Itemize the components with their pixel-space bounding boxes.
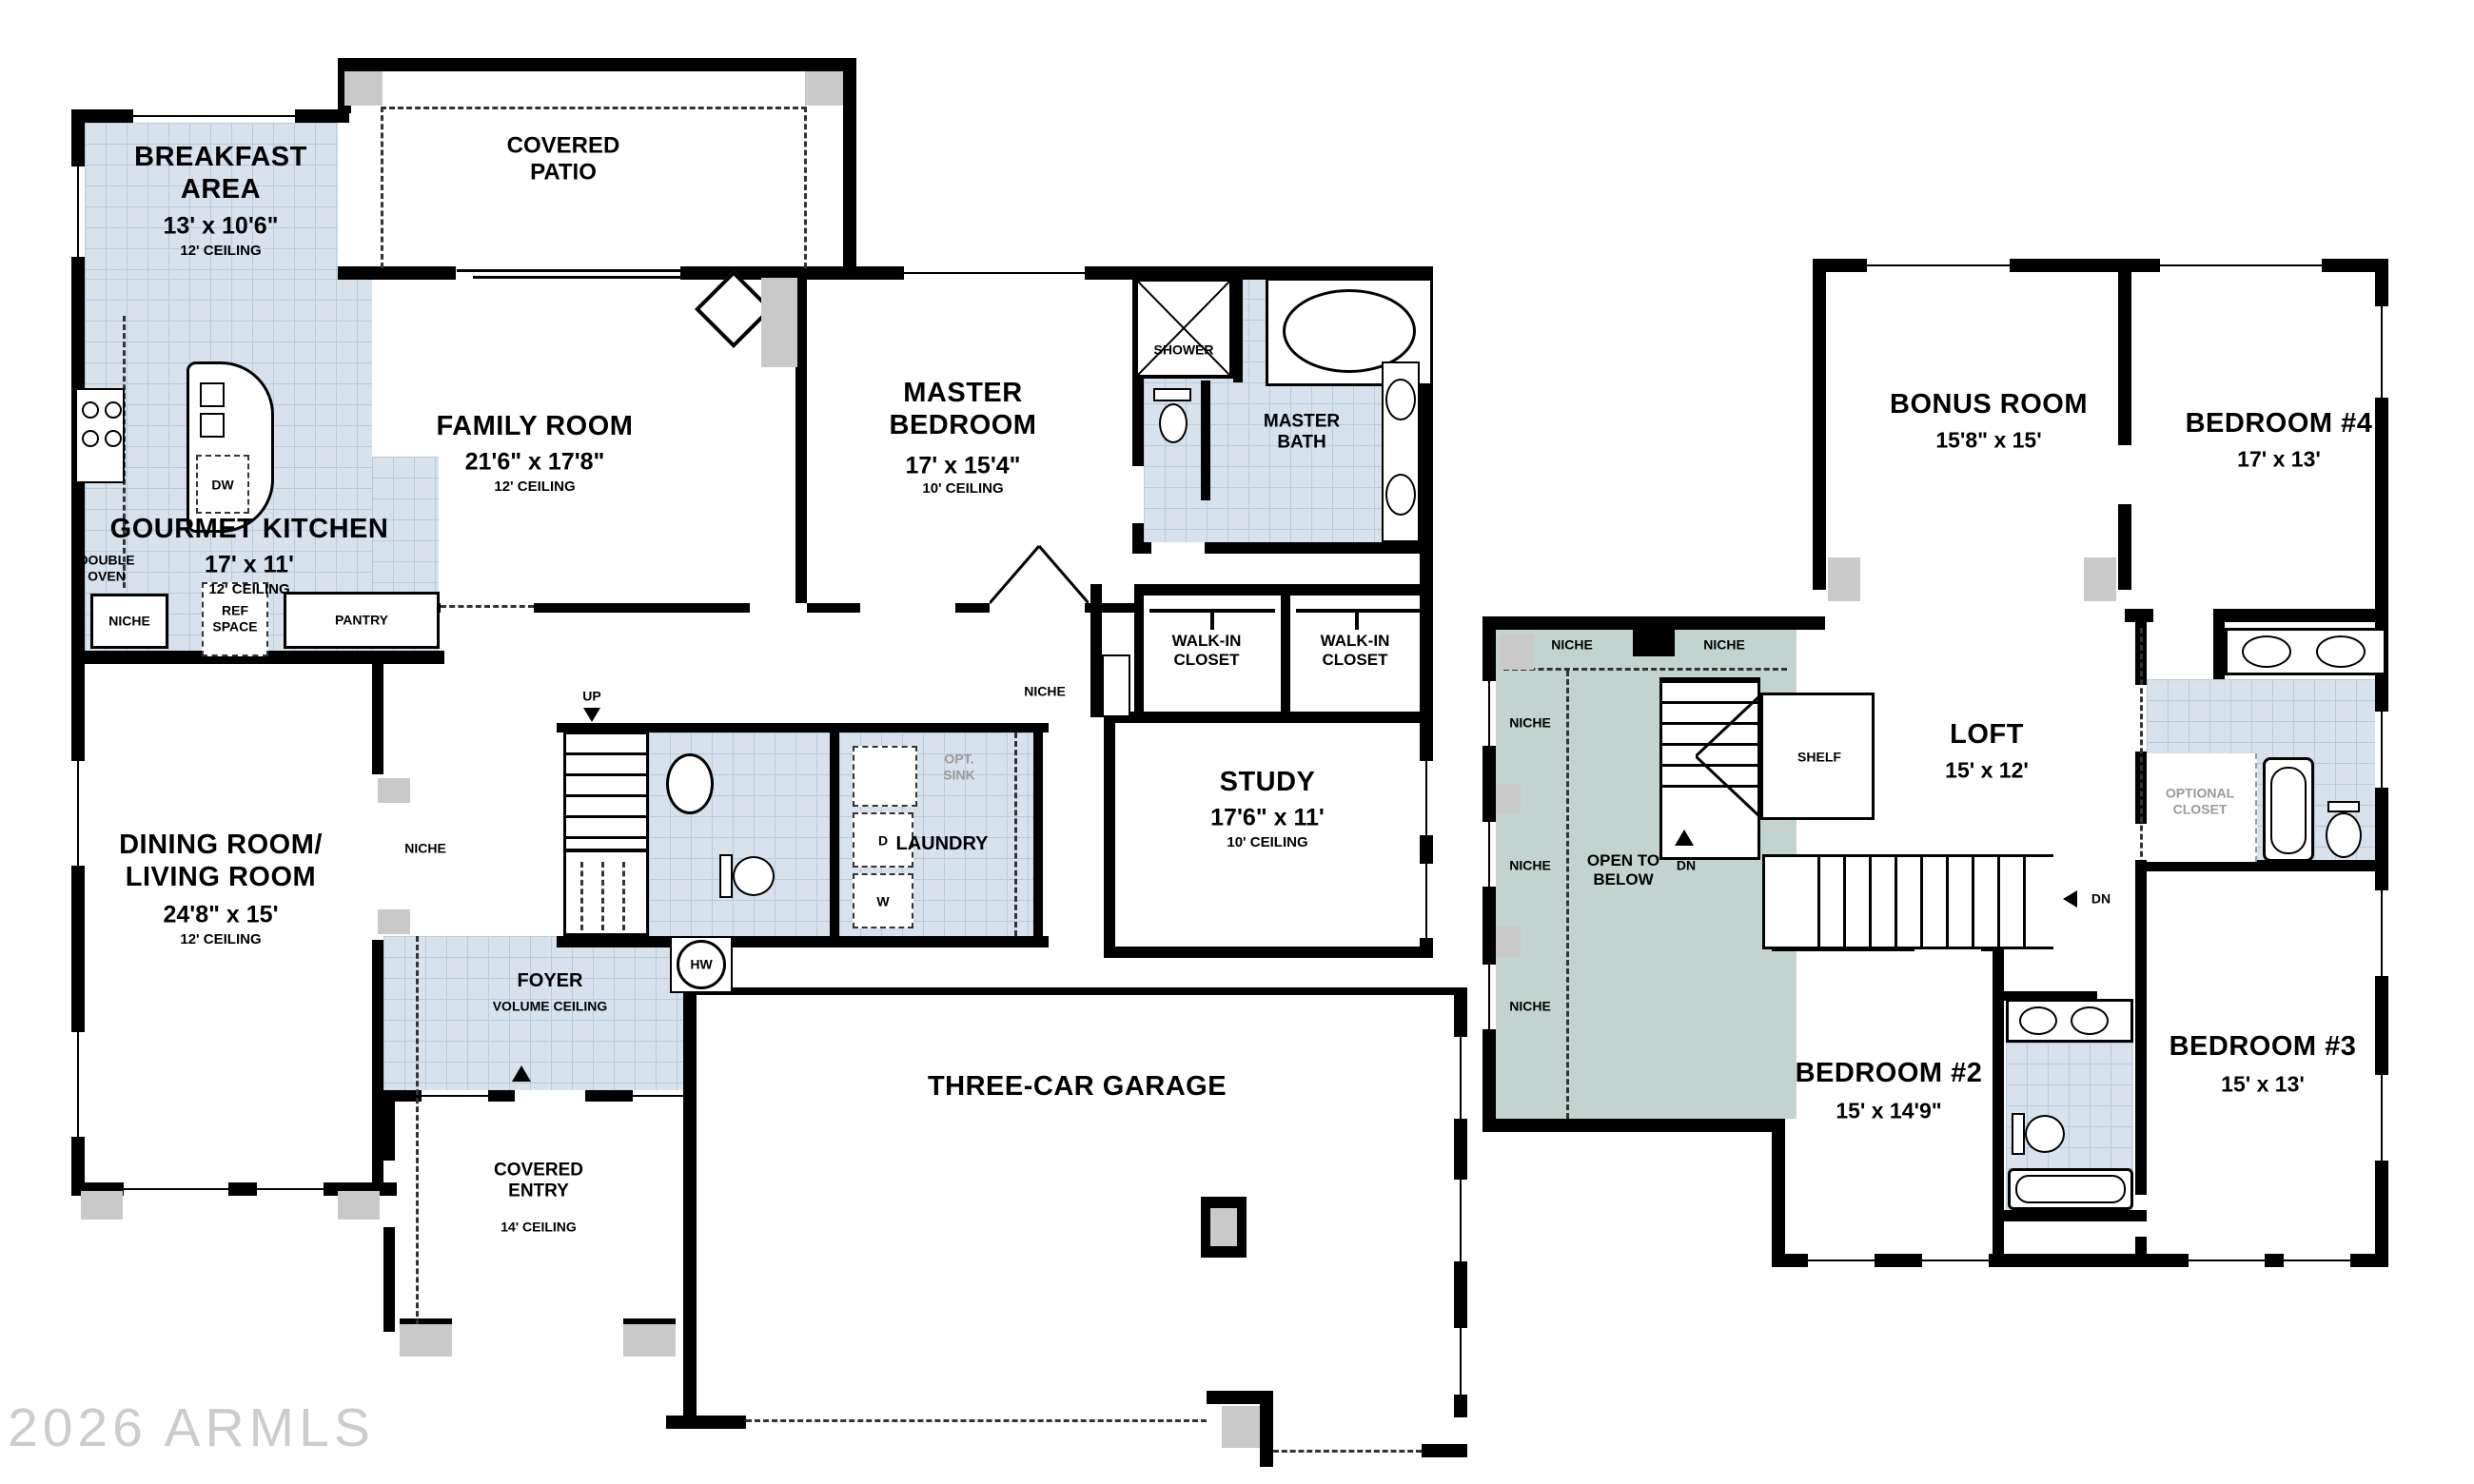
- niche-label: NICHE: [1509, 858, 1551, 874]
- dining-dims: 24'8" x 15': [163, 901, 278, 929]
- dryer-label: D: [878, 833, 888, 849]
- up-label: UP: [582, 689, 600, 705]
- entry-arrow-icon: [512, 1065, 531, 1082]
- vanity-sink: [2316, 635, 2366, 668]
- wall: [1422, 1444, 1467, 1457]
- dining-label: DINING ROOM/ LIVING ROOM: [119, 829, 323, 893]
- toilet-tank: [719, 854, 733, 898]
- wall: [1090, 584, 1102, 717]
- mid-tub-inner: [2015, 1175, 2126, 1203]
- niche-label: NICHE: [1509, 999, 1551, 1015]
- master-bedroom-dims: 17' x 15'4": [905, 452, 1020, 480]
- understair-line: [601, 862, 604, 930]
- master-bath-label: MASTER BATH: [1264, 412, 1340, 455]
- wall: [1134, 584, 1433, 596]
- wall: [2135, 871, 2147, 1195]
- niche-label: NICHE: [108, 614, 150, 630]
- wall: [1134, 596, 1144, 719]
- window: [2375, 1075, 2388, 1161]
- water-heater-label: HW: [690, 957, 712, 973]
- window: [2160, 259, 2322, 272]
- window: [2189, 1254, 2265, 1267]
- wall: [488, 1090, 515, 1102]
- fireplace-chase: [761, 278, 797, 367]
- niche-label: NICHE: [1024, 684, 1066, 700]
- dn-arrow-icon: [2063, 890, 2077, 908]
- dn-label: DN: [2091, 891, 2111, 908]
- window: [422, 1090, 488, 1102]
- window: [1922, 1254, 1989, 1267]
- stair-landing-line: [566, 849, 646, 852]
- post: [344, 71, 383, 106]
- window: [1867, 259, 2010, 272]
- niche-label: NICHE: [1509, 715, 1551, 732]
- bedroom2-dims: 15' x 14'9": [1836, 1098, 1941, 1123]
- breakfast-ceiling: 12' CEILING: [180, 243, 261, 260]
- toilet-tank: [1153, 388, 1191, 401]
- wall: [1772, 1119, 1785, 1267]
- window: [1454, 1328, 1467, 1395]
- optional-closet-label: OPTIONAL CLOSET: [2166, 785, 2234, 816]
- window: [71, 1032, 85, 1137]
- window: [1808, 1254, 1875, 1267]
- window: [2375, 890, 2388, 976]
- post: [81, 1191, 123, 1220]
- opt-sink-label: OPT. SINK: [943, 751, 974, 782]
- family-room-dims: 21'6" x 17'8": [465, 448, 605, 477]
- vanity-sink: [2242, 635, 2291, 668]
- vanity-sink: [2071, 1006, 2109, 1035]
- study-label: STUDY: [1220, 766, 1316, 798]
- foyer-label: FOYER: [518, 970, 583, 993]
- sliding-door: [473, 276, 682, 279]
- wall: [689, 987, 1467, 995]
- island-sink: [200, 413, 225, 438]
- niche-label: NICHE: [1551, 637, 1593, 654]
- floor-plan-canvas: BREAKFAST AREA 13' x 10'6" 12' CEILING C…: [0, 0, 2474, 1484]
- bonus-room-label: BONUS ROOM: [1890, 388, 2088, 420]
- wall: [1104, 712, 1115, 958]
- covered-entry-ceiling: 14' CEILING: [501, 1220, 577, 1236]
- toilet-bowl: [1159, 403, 1188, 443]
- sliding-door: [457, 269, 680, 272]
- wall: [2118, 504, 2131, 590]
- wall: [338, 266, 456, 280]
- post: [1496, 927, 1521, 957]
- wall: [1201, 381, 1210, 500]
- bedroom3-label: BEDROOM #3: [2170, 1030, 2357, 1063]
- ref-space-label: REF SPACE: [212, 602, 257, 634]
- post: [1496, 784, 1521, 814]
- wall: [843, 58, 856, 280]
- post: [623, 1324, 676, 1357]
- wall: [383, 1102, 395, 1161]
- wall: [1993, 1210, 2147, 1221]
- loft-dims: 15' x 12': [1945, 757, 2029, 783]
- post: [1500, 634, 1534, 670]
- niche-label: NICHE: [404, 841, 446, 857]
- burner: [105, 430, 122, 447]
- master-door-lines: [990, 544, 1089, 605]
- wall: [683, 936, 697, 1417]
- master-tub: [1283, 289, 1416, 373]
- powder-sink: [666, 753, 714, 814]
- wall: [1104, 947, 1433, 958]
- window: [71, 761, 85, 866]
- window: [2284, 1254, 2350, 1267]
- covered-entry-label: COVERED ENTRY: [494, 1161, 583, 1203]
- dn-label: DN: [1677, 858, 1696, 874]
- garage-post-core: [1210, 1208, 1237, 1246]
- up-arrow-icon: [583, 708, 600, 722]
- wall: [338, 58, 856, 71]
- family-room-ceiling: 12' CEILING: [494, 478, 575, 496]
- wall: [383, 1227, 395, 1332]
- kitchen-label: GOURMET KITCHEN: [110, 513, 389, 545]
- wall: [2213, 622, 2225, 679]
- vanity-sink: [1385, 474, 1416, 516]
- ceiling-break: [1014, 732, 1017, 936]
- post: [338, 1191, 380, 1220]
- bedroom4-label: BEDROOM #4: [2186, 407, 2373, 439]
- vanity-sink: [2019, 1006, 2057, 1035]
- kitchen-dims: 17' x 11': [205, 551, 294, 579]
- window: [633, 1090, 683, 1102]
- open-to-below-label: OPEN TO BELOW: [1587, 851, 1659, 889]
- wall: [2125, 609, 2153, 622]
- cased-opening: [441, 605, 534, 609]
- shower-label: SHOWER: [1154, 342, 1214, 359]
- window: [1482, 822, 1496, 887]
- toilet-bowl: [733, 856, 775, 896]
- post: [400, 1324, 452, 1357]
- ceiling-break: [416, 936, 419, 1351]
- wall: [1482, 1119, 1785, 1132]
- niche-recess: [1102, 654, 1130, 717]
- niche-label: NICHE: [1703, 637, 1745, 654]
- post: [1828, 557, 1860, 601]
- window: [133, 109, 295, 123]
- understair-line: [622, 862, 625, 930]
- closet-rod: [1355, 609, 1359, 630]
- dining-ceiling: 12' CEILING: [180, 931, 261, 948]
- bonus-room-dims: 15'8" x 15': [1935, 427, 2041, 453]
- stair-treads: [1817, 857, 2027, 947]
- wall: [534, 603, 750, 613]
- patio-label: COVERED PATIO: [507, 133, 620, 187]
- wall: [1104, 712, 1433, 723]
- stair-treads: [566, 732, 646, 848]
- wall: [1281, 596, 1290, 719]
- burner: [82, 430, 99, 447]
- window: [257, 1182, 324, 1196]
- window: [1454, 1180, 1467, 1261]
- patio-roof-line: [381, 107, 807, 268]
- bedroom2-label: BEDROOM #2: [1796, 1057, 1983, 1089]
- burner: [82, 401, 99, 419]
- wall: [2118, 259, 2131, 445]
- toilet-bowl: [2326, 812, 2362, 858]
- window: [1420, 864, 1433, 938]
- wall: [372, 664, 383, 774]
- garage-label: THREE-CAR GARAGE: [928, 1070, 1227, 1103]
- shelf-label: SHELF: [1797, 750, 1841, 766]
- wall: [585, 1090, 633, 1102]
- dn-arrow-icon: [1675, 830, 1694, 846]
- breakfast-label: BREAKFAST AREA: [134, 141, 307, 205]
- study-dims: 17'6" x 11': [1210, 804, 1325, 832]
- niche-line: [1503, 668, 1787, 671]
- wall: [372, 940, 383, 1196]
- closet-rod: [1210, 609, 1214, 630]
- wall: [2135, 1237, 2147, 1267]
- shower-box: [1134, 278, 1233, 379]
- breakfast-dims: 13' x 10'6": [163, 212, 278, 241]
- dishwasher-label: DW: [211, 478, 233, 494]
- toilet-tank: [2327, 801, 2360, 812]
- garage-door: [1273, 1450, 1422, 1453]
- post: [805, 71, 843, 106]
- island-sink: [200, 382, 225, 407]
- wall: [1633, 616, 1675, 656]
- window: [124, 1182, 228, 1196]
- window: [1482, 965, 1496, 1029]
- wall: [807, 603, 860, 613]
- washer-label: W: [876, 894, 889, 910]
- wall: [1132, 542, 1151, 554]
- wall: [1260, 1391, 1273, 1467]
- window: [904, 266, 1085, 280]
- wall: [1233, 278, 1243, 382]
- hall-tub-inner: [2270, 767, 2307, 854]
- double-oven-label: DOUBLE OVEN: [78, 552, 134, 583]
- stair-treads: [1662, 680, 1757, 794]
- understair-line: [580, 862, 583, 930]
- kitchen-ceiling: 12' CEILING: [208, 581, 289, 598]
- wall: [557, 936, 1049, 947]
- family-room-label: FAMILY ROOM: [437, 410, 634, 442]
- laundry-label: LAUNDRY: [895, 833, 988, 856]
- foyer-sub-label: VOLUME CEILING: [493, 999, 608, 1015]
- wall: [955, 603, 990, 613]
- study-ceiling: 10' CEILING: [1227, 834, 1307, 851]
- toilet-bowl: [2025, 1115, 2065, 1153]
- window: [71, 166, 85, 257]
- window: [2375, 306, 2388, 398]
- bedroom3-dims: 15' x 13': [2221, 1071, 2305, 1097]
- toilet-tank: [2012, 1113, 2025, 1155]
- wall: [1033, 723, 1043, 944]
- loft-label: LOFT: [1950, 718, 2024, 751]
- vanity-sink: [1385, 379, 1416, 420]
- window: [1420, 761, 1433, 835]
- open-below-line: [1566, 671, 1569, 1119]
- wall: [666, 1416, 746, 1429]
- post: [378, 909, 410, 934]
- bedroom4-dims: 17' x 13': [2237, 446, 2321, 472]
- walkin-closet-label: WALK-IN CLOSET: [1172, 632, 1242, 670]
- garage-door: [746, 1419, 1207, 1422]
- post: [2084, 557, 2116, 601]
- master-bedroom-ceiling: 10' CEILING: [922, 480, 1003, 498]
- wall: [2213, 609, 2388, 622]
- wall: [1205, 542, 1433, 554]
- window: [1482, 681, 1496, 746]
- pantry-label: PANTRY: [335, 613, 388, 629]
- burner: [105, 401, 122, 419]
- wall: [1813, 272, 1826, 590]
- window: [1454, 1037, 1467, 1119]
- post: [1222, 1406, 1260, 1448]
- watermark: 2026 ARMLS: [8, 1396, 375, 1459]
- post: [378, 778, 410, 803]
- window: [2375, 712, 2388, 788]
- wall: [830, 723, 839, 944]
- walkin-closet-label: WALK-IN CLOSET: [1321, 632, 1390, 670]
- optional-sink-box: [853, 746, 917, 807]
- master-bedroom-label: MASTER BEDROOM: [890, 377, 1037, 441]
